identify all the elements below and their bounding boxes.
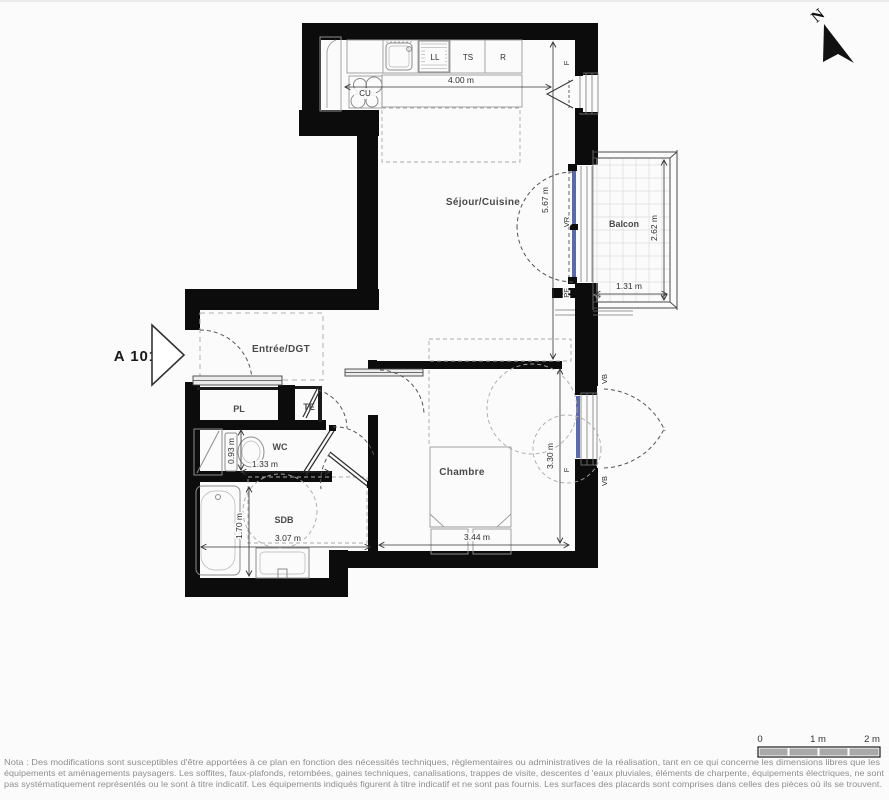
dim-sdb-width: 3.07 m [275,533,301,543]
label-chambre: Chambre [439,467,485,478]
dim-chambre-width: 3.44 m [464,532,490,542]
sink [386,42,412,70]
dim-sdb-depth: 1.70 m [234,513,244,539]
unit-identifier: A 101 [114,325,184,385]
bedroom-door [380,370,424,415]
dim-kitchen-width: 4.00 m [448,75,474,85]
label-te: TE [303,402,315,412]
label-pl: PL [233,404,245,414]
label-balcony-door: PF [562,288,571,298]
bedroom-window [576,389,665,468]
floor-plan-drawing: 4.00 m 5.67 m 2.62 m 1.31 m 0.93 m 1.33 … [0,0,889,800]
scale-tick-0: 0 [757,734,762,745]
glazing-bedroom [576,396,580,458]
dim-sejour-depth: 5.67 m [540,187,550,213]
label-refrigerator: R [500,53,506,62]
bed [430,447,511,527]
north-arrow: N [808,5,854,63]
scale-tick-1: 1 m [810,734,826,745]
window-swing-triangle [547,80,573,108]
label-ts: TS [463,53,473,62]
dim-chambre-depth: 3.30 m [545,443,555,469]
clearance-circle-1 [487,364,577,454]
label-balcon: Balcon [609,219,639,229]
north-arrow-icon [823,24,854,63]
dim-balcon-depth: 2.62 m [649,215,659,241]
kitchen-window [547,71,598,114]
label-sdb: SDB [274,515,294,525]
nightstand-left [431,529,468,554]
label-lavelinge: LL [431,53,440,62]
label-vb-top: VB [600,374,609,384]
label-cooktop: CU [359,89,371,98]
kitchen-island-dashed [382,108,520,162]
north-label: N [808,5,828,26]
dim-balcon-width: 1.31 m [616,281,642,291]
sejour-sliding-door [345,369,423,376]
label-balcony-shutter: VR [562,216,571,227]
sejour-closet-dashed [429,339,571,361]
kitchen-counter [320,37,522,162]
washbasin [256,548,309,578]
interior-walls [190,360,562,561]
label-vb-bottom: VB [600,476,609,486]
glazing-bottom-leaf [572,229,576,279]
nota-text: Nota : Des modifications sont susceptibl… [4,757,885,789]
nota-line-1: Nota : Des modifications sont susceptibl… [4,757,880,767]
dim-wc-width: 1.33 m [252,459,278,469]
dim-wc-depth: 0.93 m [226,438,236,464]
entrance-door [193,330,282,385]
glazing-top-leaf [572,170,576,224]
page-top-border [0,0,889,2]
label-bedroom-window: F [562,467,571,472]
label-kitchen-window: F [562,60,571,65]
nota-line-2: équipements et aménagements paysagers. L… [4,768,885,778]
scale-bar: 0 1 m 2 m [757,734,880,757]
entry-arrow-icon [152,325,184,385]
nota-line-3: pas systématiquement représentés ou le s… [4,779,882,789]
wc-door [303,425,374,475]
exterior-walls [185,23,598,597]
balcony-door [517,164,592,284]
sdb-door [321,452,374,489]
tall-unit [320,37,341,111]
floor-plan-page: 4.00 m 5.67 m 2.62 m 1.31 m 0.93 m 1.33 … [0,0,889,800]
label-wc: WC [273,442,288,452]
appliance-labels: CU LL TS R [359,53,506,98]
label-sejour: Séjour/Cuisine [446,197,520,208]
label-entree: Entrée/DGT [252,344,310,355]
scale-tick-2: 2 m [864,734,880,745]
